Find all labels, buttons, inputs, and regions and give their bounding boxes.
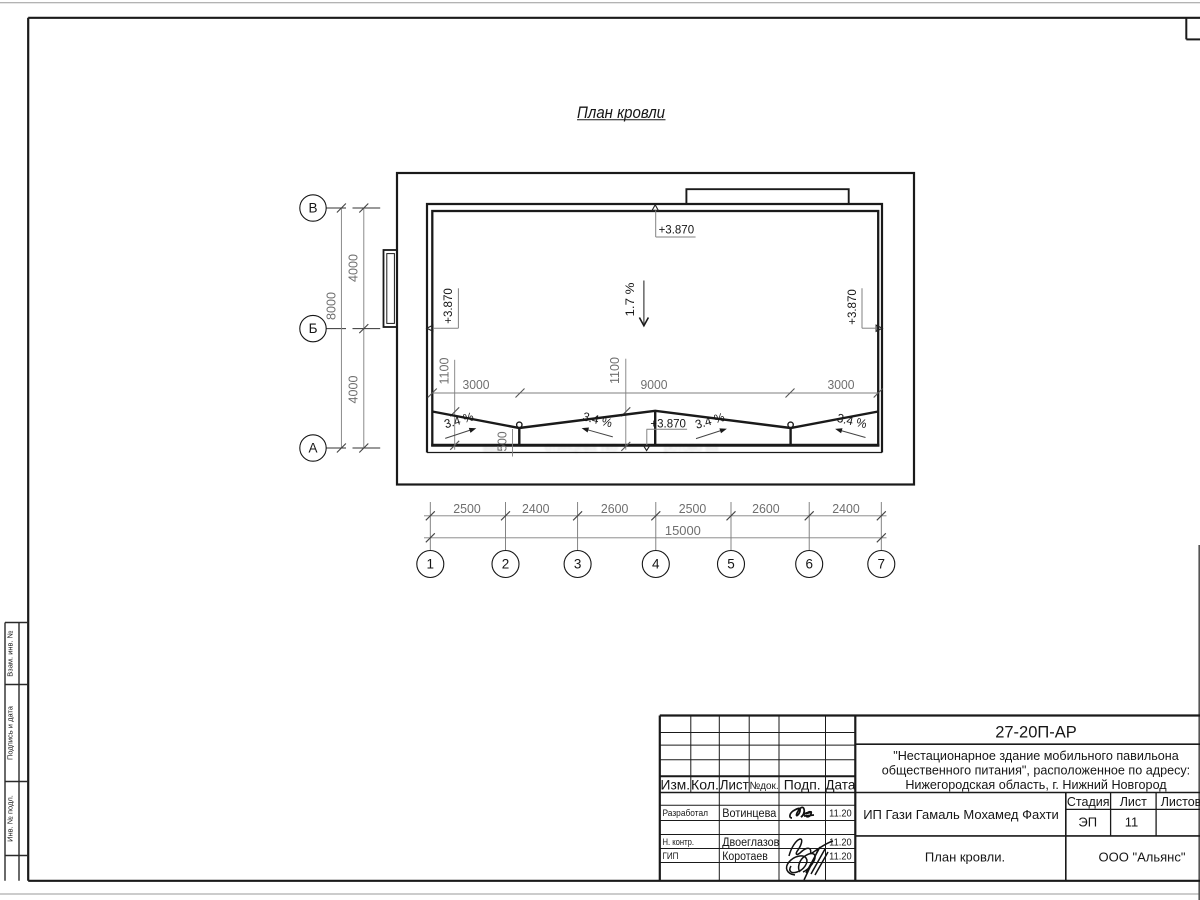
svg-text:8000: 8000 — [323, 292, 338, 320]
svg-text:Лист: Лист — [1120, 795, 1147, 809]
svg-text:1.7 %: 1.7 % — [623, 282, 637, 316]
svg-text:ООО "Альянс": ООО "Альянс" — [1099, 850, 1186, 865]
svg-text:Кол.: Кол. — [691, 777, 719, 793]
svg-text:ЭП: ЭП — [1078, 815, 1097, 830]
svg-text:Нижегородская область, г. Нижн: Нижегородская область, г. Нижний Новгоро… — [905, 778, 1167, 792]
svg-text:№док.: №док. — [750, 780, 779, 792]
svg-text:11: 11 — [1125, 815, 1139, 830]
svg-text:15000: 15000 — [665, 523, 701, 538]
svg-text:Стадия: Стадия — [1067, 795, 1110, 809]
svg-text:6: 6 — [805, 557, 813, 572]
svg-text:2500: 2500 — [679, 501, 707, 516]
svg-text:Листов: Листов — [1161, 795, 1200, 809]
svg-text:отинцева тко: отинцева тко — [545, 440, 618, 454]
svg-text:4000: 4000 — [345, 254, 360, 282]
svg-text:1100: 1100 — [437, 358, 452, 385]
svg-text:11.20: 11.20 — [829, 837, 852, 849]
svg-text:"Нестационарное здание мобильн: "Нестационарное здание мобильного павиль… — [893, 749, 1179, 763]
svg-text:Двоеглазов: Двоеглазов — [722, 837, 779, 849]
svg-text:3000: 3000 — [828, 377, 855, 392]
svg-text:Разработал: Разработал — [663, 808, 709, 819]
svg-text:11.20: 11.20 — [829, 808, 852, 820]
svg-text:+3.870: +3.870 — [847, 289, 859, 325]
svg-text:2: 2 — [502, 557, 510, 572]
svg-text:ГИП: ГИП — [663, 851, 679, 862]
svg-text:Подп.: Подп. — [784, 777, 821, 793]
svg-text:В: В — [308, 201, 317, 216]
svg-text:11.20: 11.20 — [829, 851, 852, 863]
svg-text:+3.870: +3.870 — [659, 224, 695, 236]
svg-text:4: 4 — [652, 557, 660, 572]
svg-text:27-20П-АР: 27-20П-АР — [995, 723, 1077, 741]
svg-text:2600: 2600 — [752, 501, 780, 516]
svg-text:2600: 2600 — [601, 501, 629, 516]
svg-text:Б: Б — [309, 321, 318, 336]
svg-text:общественного питания", распол: общественного питания", расположенное по… — [882, 764, 1190, 778]
svg-text:ротово ва: ротово ва — [664, 440, 719, 454]
svg-text:1: 1 — [427, 557, 435, 572]
svg-text:Дата: Дата — [825, 777, 855, 793]
svg-text:Лист: Лист — [720, 777, 750, 793]
svg-text:Коротаев: Коротаев — [722, 851, 768, 863]
svg-text:+3.870: +3.870 — [443, 288, 455, 324]
svg-text:2400: 2400 — [522, 501, 550, 516]
svg-text:3000: 3000 — [463, 377, 490, 392]
svg-text:2400: 2400 — [832, 501, 860, 516]
svg-text:2500: 2500 — [453, 501, 481, 516]
svg-text:+3.870: +3.870 — [650, 418, 686, 430]
svg-text:1100: 1100 — [607, 357, 622, 384]
svg-text:вва: вва — [483, 441, 503, 455]
svg-text:9000: 9000 — [641, 377, 668, 392]
svg-text:5: 5 — [727, 557, 735, 572]
svg-text:Подпись и дата: Подпись и дата — [6, 705, 15, 760]
svg-text:План кровли.: План кровли. — [925, 850, 1005, 865]
svg-text:А: А — [308, 441, 317, 456]
svg-text:Н. контр.: Н. контр. — [663, 837, 695, 848]
svg-text:7: 7 — [878, 557, 886, 572]
svg-text:Вотинцева: Вотинцева — [722, 808, 777, 820]
svg-text:План кровли: План кровли — [577, 103, 665, 122]
svg-text:Инв. № подл.: Инв. № подл. — [6, 795, 15, 842]
svg-text:ИП Гази Гамаль Мохамед Фахти: ИП Гази Гамаль Мохамед Фахти — [863, 807, 1059, 822]
svg-text:Изм.: Изм. — [661, 777, 691, 793]
svg-text:Взам. инв. №: Взам. инв. № — [6, 630, 15, 676]
svg-text:4000: 4000 — [345, 376, 360, 404]
svg-text:3: 3 — [574, 557, 582, 572]
